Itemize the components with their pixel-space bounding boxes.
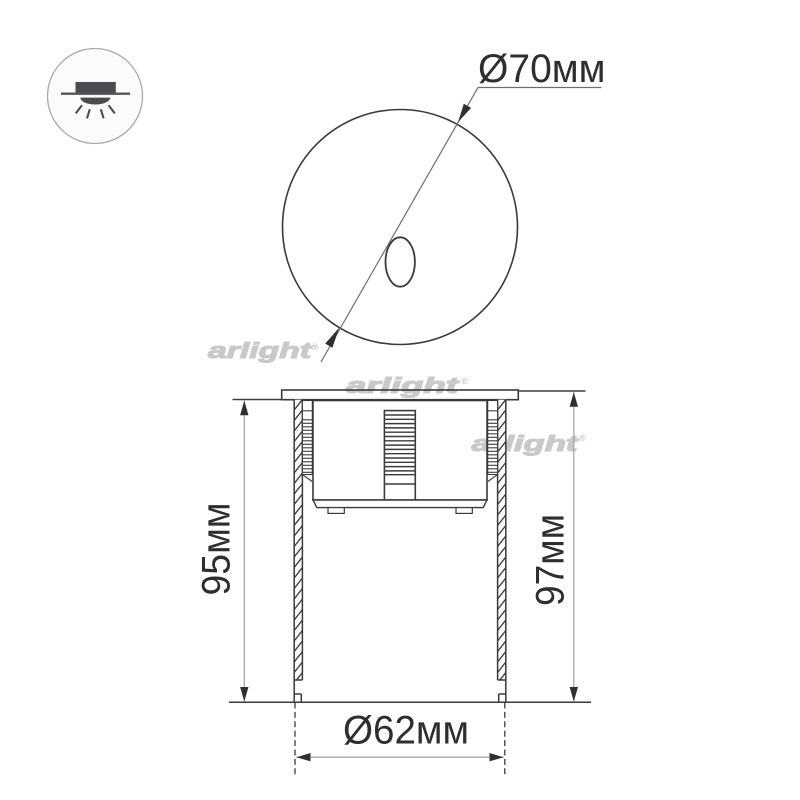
svg-text:arlight: arlight — [208, 338, 313, 363]
svg-text:95мм: 95мм — [194, 503, 238, 596]
svg-text:arlight: arlight — [346, 373, 460, 398]
svg-text:®: ® — [312, 342, 319, 352]
svg-text:®: ® — [579, 433, 586, 443]
svg-text:Ø70мм: Ø70мм — [478, 47, 606, 91]
svg-text:®: ® — [461, 376, 468, 386]
svg-text:97мм: 97мм — [529, 514, 573, 606]
svg-text:Ø62мм: Ø62мм — [343, 709, 469, 753]
